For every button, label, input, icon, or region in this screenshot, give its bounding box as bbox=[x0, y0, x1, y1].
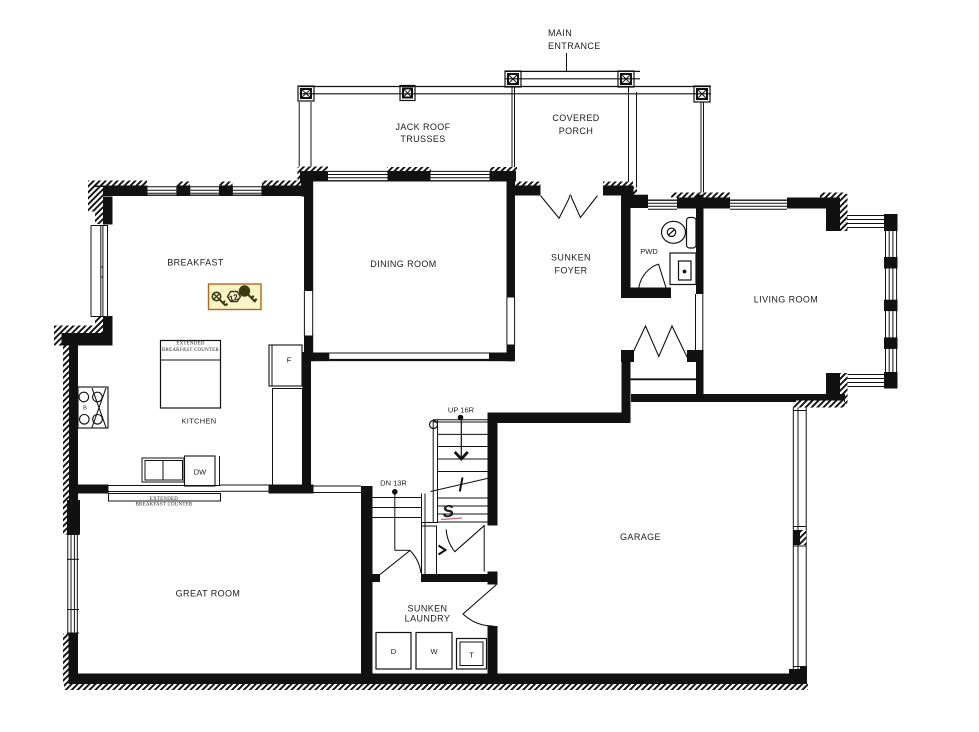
svg-text:COVERED: COVERED bbox=[552, 113, 599, 123]
svg-text:EXTENDED: EXTENDED bbox=[176, 342, 204, 347]
svg-text:MAIN: MAIN bbox=[548, 28, 572, 38]
svg-text:B: B bbox=[83, 406, 87, 412]
svg-text:FOYER: FOYER bbox=[554, 266, 587, 276]
svg-text:F: F bbox=[287, 356, 292, 365]
svg-text:LIVING ROOM: LIVING ROOM bbox=[754, 295, 818, 305]
svg-text:JACK ROOF: JACK ROOF bbox=[395, 122, 450, 132]
svg-text:BREAKFAST: BREAKFAST bbox=[167, 258, 224, 268]
svg-text:T: T bbox=[469, 651, 474, 660]
svg-text:ENTRANCE: ENTRANCE bbox=[548, 41, 601, 51]
svg-text:PORCH: PORCH bbox=[559, 126, 594, 136]
svg-text:LAUNDRY: LAUNDRY bbox=[405, 614, 451, 624]
svg-text:KITCHEN: KITCHEN bbox=[181, 417, 216, 426]
svg-text:SUNKEN: SUNKEN bbox=[551, 253, 591, 263]
svg-text:BREAKFAST COUNTER: BREAKFAST COUNTER bbox=[136, 503, 193, 508]
svg-text:BREAKFAST COUNTER: BREAKFAST COUNTER bbox=[162, 348, 219, 353]
svg-text:GARAGE: GARAGE bbox=[620, 532, 661, 542]
svg-text:DN 13R: DN 13R bbox=[380, 479, 407, 488]
svg-text:TRUSSES: TRUSSES bbox=[400, 134, 445, 144]
svg-text:SUNKEN: SUNKEN bbox=[408, 604, 448, 614]
svg-text:W: W bbox=[430, 647, 438, 656]
svg-text:D: D bbox=[391, 647, 397, 656]
svg-text:DW: DW bbox=[194, 468, 207, 477]
svg-text:GREAT ROOM: GREAT ROOM bbox=[176, 589, 241, 599]
svg-text:UP 16R: UP 16R bbox=[448, 406, 475, 415]
svg-text:EXTENDED: EXTENDED bbox=[150, 497, 178, 502]
svg-text:DINING ROOM: DINING ROOM bbox=[370, 259, 436, 269]
svg-text:PWD: PWD bbox=[640, 247, 658, 256]
